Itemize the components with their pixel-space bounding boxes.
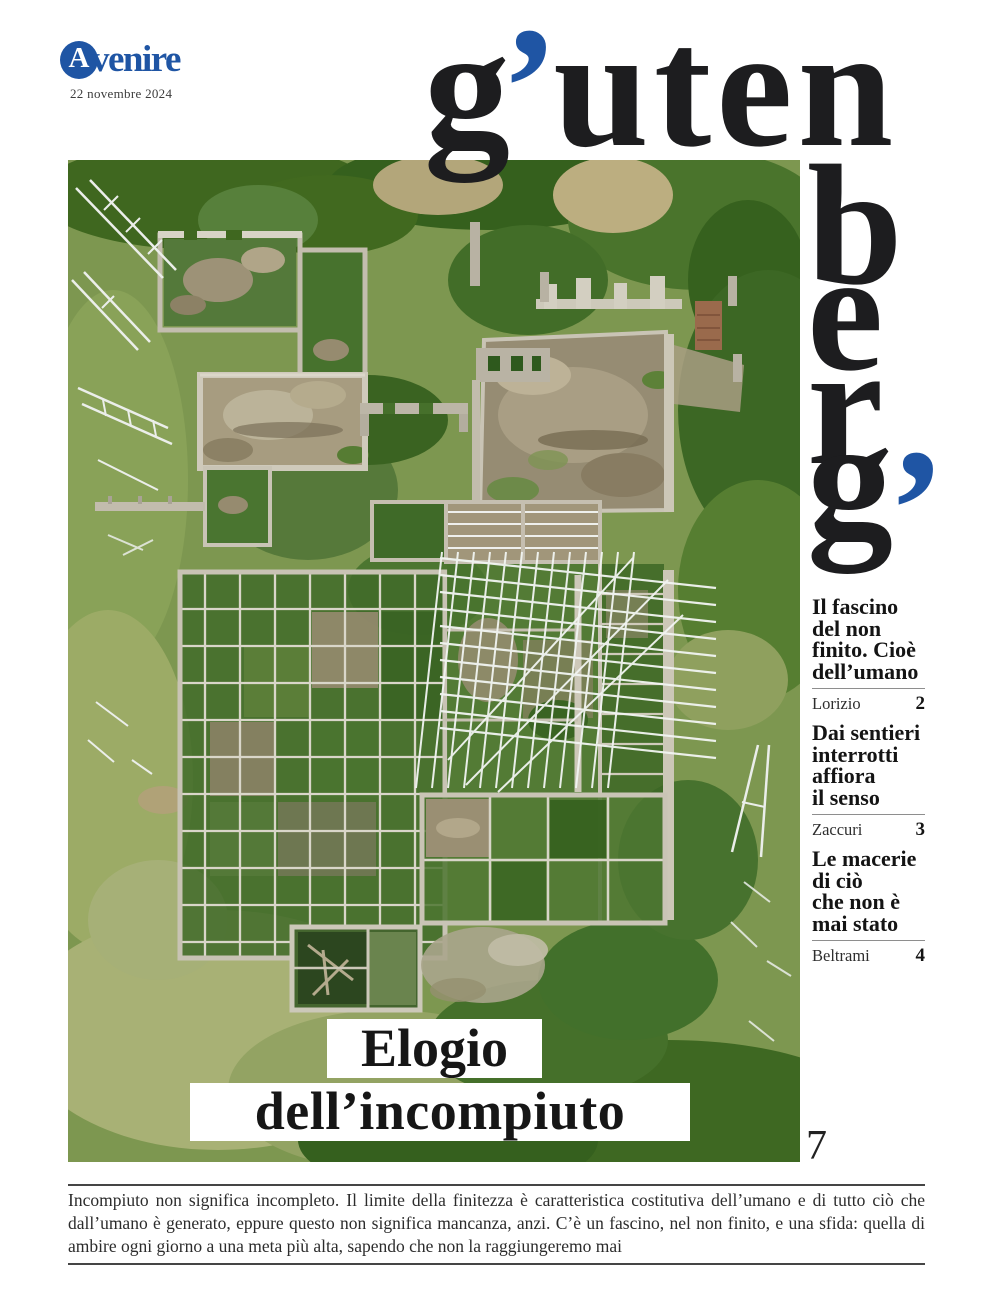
- toc-item-title: Dai sentieri interrotti affiora il senso: [812, 722, 925, 808]
- toc-item-2: Dai sentieri interrotti affiora il senso…: [812, 722, 925, 841]
- brand-wordmark: venire: [91, 38, 180, 81]
- headline-line1: Elogio: [327, 1019, 542, 1078]
- page-number: 7: [806, 1125, 827, 1167]
- headline-line2: dell’incompiuto: [190, 1083, 690, 1141]
- toc-item-3: Le macerie di ciò che non è mai stato Be…: [812, 848, 925, 967]
- toc-item-title: Il fascino del non finito. Cioè dell’uma…: [812, 596, 925, 682]
- toc-item-title: Le macerie di ciò che non è mai stato: [812, 848, 925, 934]
- toc-item-meta: Beltrami 4: [812, 940, 925, 967]
- masthead-side-letter-g: g: [807, 393, 893, 565]
- toc-item-page: 4: [916, 945, 926, 967]
- aerial-photo-art: [68, 160, 800, 1162]
- toc-item-author: Beltrami: [812, 946, 870, 966]
- brand-initial: A: [69, 44, 90, 73]
- issue-date: 22 novembre 2024: [70, 86, 172, 102]
- toc-item-page: 3: [916, 819, 926, 841]
- toc-item-author: Zaccuri: [812, 820, 862, 840]
- toc-item-1: Il fascino del non finito. Cioè dell’uma…: [812, 596, 925, 715]
- masthead-side-apostrophe: ’: [888, 424, 945, 596]
- standfirst-text: Incompiuto non significa incompleto. Il …: [68, 1189, 925, 1258]
- toc-item-meta: Zaccuri 3: [812, 814, 925, 841]
- newspaper-front-page: A venire 22 novembre 2024 g’uten b e r g…: [0, 0, 994, 1313]
- toc-item-meta: Lorizio 2: [812, 688, 925, 715]
- brand-logo: A venire: [60, 38, 180, 81]
- aerial-photo: [68, 160, 800, 1162]
- toc-item-page: 2: [916, 693, 926, 715]
- standfirst: Incompiuto non significa incompleto. Il …: [68, 1184, 925, 1265]
- toc-item-author: Lorizio: [812, 694, 861, 714]
